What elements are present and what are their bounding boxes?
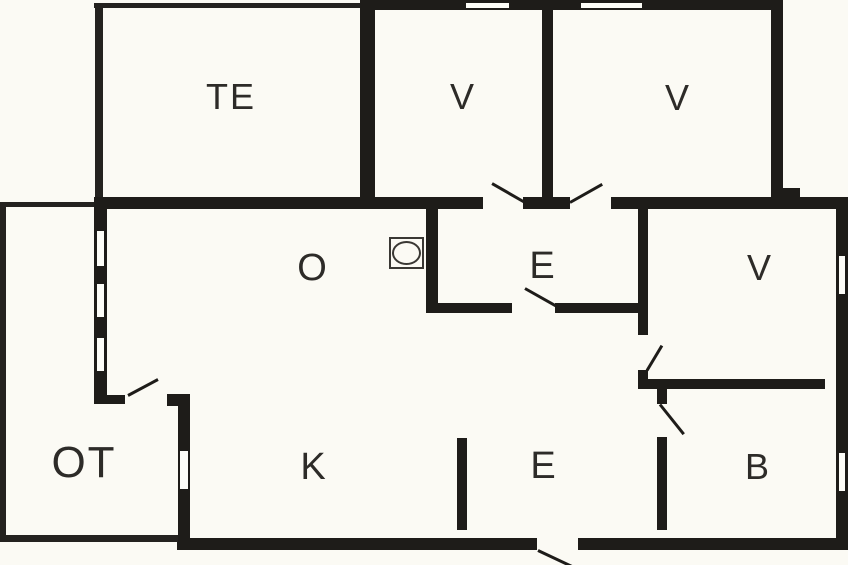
- stove-symbol-ellipse-icon: [392, 241, 421, 265]
- wall-right-exterior: [836, 197, 848, 550]
- room-label-b: B: [745, 449, 771, 485]
- thin-wall-te-left: [95, 3, 103, 197]
- wall-main-band-b: [523, 197, 570, 209]
- thin-wall-ot-bottom: [0, 535, 178, 542]
- room-label-v1: V: [450, 79, 476, 115]
- wall-te-v1-divider: [360, 0, 375, 209]
- door-swing-v3-icon: [646, 344, 664, 371]
- room-label-v3: V: [747, 250, 773, 286]
- wall-v1-v2-divider: [542, 0, 553, 199]
- wall-v2-right: [771, 0, 783, 209]
- window-top-v2: [580, 2, 643, 9]
- room-label-ot: OT: [51, 441, 116, 485]
- door-swing-b-icon: [659, 403, 685, 435]
- wall-v3-b-wall: [638, 379, 825, 389]
- wall-e1-bottom-a: [426, 303, 512, 313]
- window-right-v3: [838, 255, 846, 295]
- window-left-3: [96, 337, 105, 372]
- wall-b-stub-top: [657, 389, 667, 404]
- room-label-e1: E: [529, 247, 556, 285]
- wall-left-bottom-stub: [94, 395, 125, 404]
- window-otk: [179, 450, 189, 490]
- room-label-v2: V: [665, 80, 691, 116]
- door-swing-entry-icon: [537, 549, 572, 565]
- thin-wall-ot-top: [0, 202, 94, 207]
- door-swing-ot-icon: [127, 378, 158, 397]
- wall-bottom-b: [578, 538, 848, 550]
- wall-bottom-a: [177, 538, 537, 550]
- wall-e1-left: [426, 209, 438, 313]
- wall-e1-bottom-b: [555, 303, 648, 313]
- wall-main-band-a: [94, 197, 483, 209]
- wall-b-stub: [657, 437, 667, 530]
- window-right-b: [838, 452, 846, 492]
- window-top-v1: [465, 2, 510, 9]
- wall-main-band-c: [611, 197, 848, 209]
- wall-k-e2-stub: [457, 438, 467, 530]
- door-swing-e1-icon: [524, 287, 557, 308]
- floor-plan: TEVVOEVOTKEB: [0, 0, 848, 565]
- door-swing-v2-icon: [569, 183, 602, 204]
- wall-e1-v3-wall: [638, 209, 648, 335]
- thin-wall-te-top: [94, 3, 360, 8]
- wall-top-v-block: [360, 0, 783, 10]
- stove-symbol: [389, 237, 424, 269]
- window-left-2: [96, 283, 105, 318]
- room-label-o: O: [297, 249, 329, 287]
- room-label-k: K: [300, 448, 327, 486]
- room-label-te: TE: [206, 79, 256, 115]
- window-left-1: [96, 230, 105, 267]
- thin-wall-ot-left: [0, 202, 6, 542]
- room-label-e2: E: [530, 447, 557, 485]
- door-swing-v1-icon: [491, 182, 525, 204]
